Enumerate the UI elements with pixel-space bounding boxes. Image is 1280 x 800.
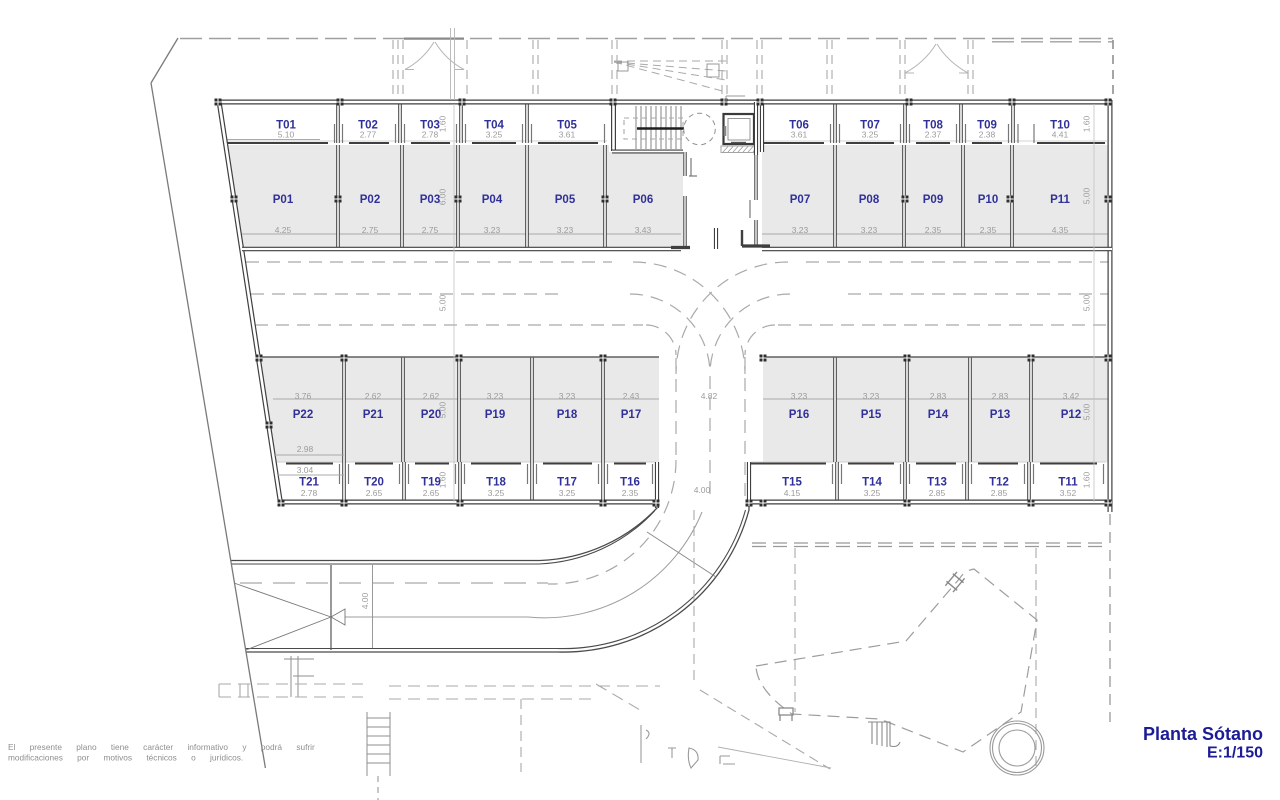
svg-text:3.23: 3.23 bbox=[792, 225, 809, 235]
svg-text:1.60: 1.60 bbox=[438, 471, 448, 488]
svg-text:2.77: 2.77 bbox=[360, 130, 377, 140]
svg-text:P16: P16 bbox=[789, 409, 809, 421]
svg-text:2.78: 2.78 bbox=[301, 488, 318, 498]
svg-text:2.65: 2.65 bbox=[366, 488, 383, 498]
svg-text:4.41: 4.41 bbox=[1052, 130, 1069, 140]
svg-text:P01: P01 bbox=[273, 194, 294, 206]
svg-text:2.43: 2.43 bbox=[623, 391, 640, 401]
svg-text:2.35: 2.35 bbox=[622, 488, 639, 498]
svg-text:5.00: 5.00 bbox=[1082, 294, 1092, 311]
svg-text:El presente plano tiene caráct: El presente plano tiene carácter informa… bbox=[8, 742, 315, 752]
svg-text:P15: P15 bbox=[861, 409, 882, 421]
svg-text:4.35: 4.35 bbox=[1052, 225, 1069, 235]
svg-text:2.62: 2.62 bbox=[423, 391, 440, 401]
svg-text:T21: T21 bbox=[299, 477, 319, 489]
svg-text:2.83: 2.83 bbox=[992, 391, 1009, 401]
svg-text:2.85: 2.85 bbox=[991, 488, 1008, 498]
svg-text:2.38: 2.38 bbox=[979, 130, 996, 140]
svg-text:2.65: 2.65 bbox=[423, 488, 440, 498]
svg-text:3.61: 3.61 bbox=[791, 130, 808, 140]
svg-text:5.10: 5.10 bbox=[278, 130, 295, 140]
svg-text:T17: T17 bbox=[557, 477, 577, 489]
svg-text:2.75: 2.75 bbox=[422, 225, 439, 235]
svg-text:3.23: 3.23 bbox=[487, 391, 504, 401]
svg-text:P18: P18 bbox=[557, 409, 578, 421]
svg-text:2.78: 2.78 bbox=[422, 130, 439, 140]
svg-text:P13: P13 bbox=[990, 409, 1010, 421]
svg-text:P14: P14 bbox=[928, 409, 949, 421]
svg-text:4.00: 4.00 bbox=[360, 592, 370, 609]
svg-text:P07: P07 bbox=[790, 194, 810, 206]
svg-text:P09: P09 bbox=[923, 194, 943, 206]
svg-text:1.60: 1.60 bbox=[1082, 115, 1092, 132]
svg-text:T18: T18 bbox=[486, 477, 506, 489]
svg-text:P11: P11 bbox=[1050, 194, 1070, 206]
svg-text:P17: P17 bbox=[621, 409, 641, 421]
svg-text:3.25: 3.25 bbox=[864, 488, 881, 498]
svg-text:3.76: 3.76 bbox=[295, 391, 312, 401]
svg-text:Planta Sótano: Planta Sótano bbox=[1143, 724, 1263, 744]
svg-text:T15: T15 bbox=[782, 477, 802, 489]
svg-text:3.52: 3.52 bbox=[1060, 488, 1077, 498]
svg-text:4.00: 4.00 bbox=[694, 485, 711, 495]
svg-text:P10: P10 bbox=[978, 194, 998, 206]
svg-text:5.00: 5.00 bbox=[1082, 403, 1092, 420]
svg-text:P05: P05 bbox=[555, 194, 576, 206]
svg-text:E:1/150: E:1/150 bbox=[1207, 745, 1263, 762]
svg-text:T16: T16 bbox=[620, 477, 640, 489]
svg-text:3.04: 3.04 bbox=[297, 465, 314, 475]
svg-text:1.60: 1.60 bbox=[1082, 471, 1092, 488]
svg-text:5.00: 5.00 bbox=[438, 294, 448, 311]
svg-text:3.61: 3.61 bbox=[559, 130, 576, 140]
svg-text:2.85: 2.85 bbox=[929, 488, 946, 498]
svg-text:2.83: 2.83 bbox=[930, 391, 947, 401]
svg-text:P22: P22 bbox=[293, 409, 313, 421]
svg-text:2.75: 2.75 bbox=[362, 225, 379, 235]
svg-text:P08: P08 bbox=[859, 194, 880, 206]
svg-text:2.98: 2.98 bbox=[297, 444, 314, 454]
svg-text:3.43: 3.43 bbox=[635, 225, 652, 235]
svg-text:2.37: 2.37 bbox=[925, 130, 942, 140]
svg-text:3.25: 3.25 bbox=[559, 488, 576, 498]
svg-text:4.15: 4.15 bbox=[784, 488, 801, 498]
svg-text:3.25: 3.25 bbox=[862, 130, 879, 140]
svg-text:4.82: 4.82 bbox=[701, 391, 718, 401]
svg-text:P19: P19 bbox=[485, 409, 505, 421]
svg-text:1.60: 1.60 bbox=[438, 115, 448, 132]
svg-text:T14: T14 bbox=[862, 477, 882, 489]
svg-text:P12: P12 bbox=[1061, 409, 1081, 421]
svg-text:5.00: 5.00 bbox=[438, 401, 448, 418]
svg-text:T11: T11 bbox=[1058, 477, 1078, 489]
svg-text:T13: T13 bbox=[927, 477, 947, 489]
svg-text:3.23: 3.23 bbox=[557, 225, 574, 235]
svg-text:3.42: 3.42 bbox=[1063, 391, 1080, 401]
svg-text:P21: P21 bbox=[363, 409, 384, 421]
svg-text:2.35: 2.35 bbox=[980, 225, 997, 235]
svg-text:P06: P06 bbox=[633, 194, 653, 206]
svg-text:3.23: 3.23 bbox=[863, 391, 880, 401]
svg-text:T20: T20 bbox=[364, 477, 384, 489]
svg-text:3.23: 3.23 bbox=[791, 391, 808, 401]
svg-text:T12: T12 bbox=[989, 477, 1009, 489]
svg-text:modificaciones por motivos téc: modificaciones por motivos técnicos o ju… bbox=[8, 753, 243, 763]
svg-text:3.23: 3.23 bbox=[861, 225, 878, 235]
svg-text:4.25: 4.25 bbox=[275, 225, 292, 235]
svg-text:3.23: 3.23 bbox=[559, 391, 576, 401]
svg-text:6.00: 6.00 bbox=[438, 188, 448, 205]
svg-text:P04: P04 bbox=[482, 194, 503, 206]
svg-text:2.35: 2.35 bbox=[925, 225, 942, 235]
svg-text:P02: P02 bbox=[360, 194, 380, 206]
svg-text:3.25: 3.25 bbox=[488, 488, 505, 498]
svg-text:3.25: 3.25 bbox=[486, 130, 503, 140]
svg-text:3.23: 3.23 bbox=[484, 225, 501, 235]
svg-text:2.62: 2.62 bbox=[365, 391, 382, 401]
svg-text:5.00: 5.00 bbox=[1082, 187, 1092, 204]
